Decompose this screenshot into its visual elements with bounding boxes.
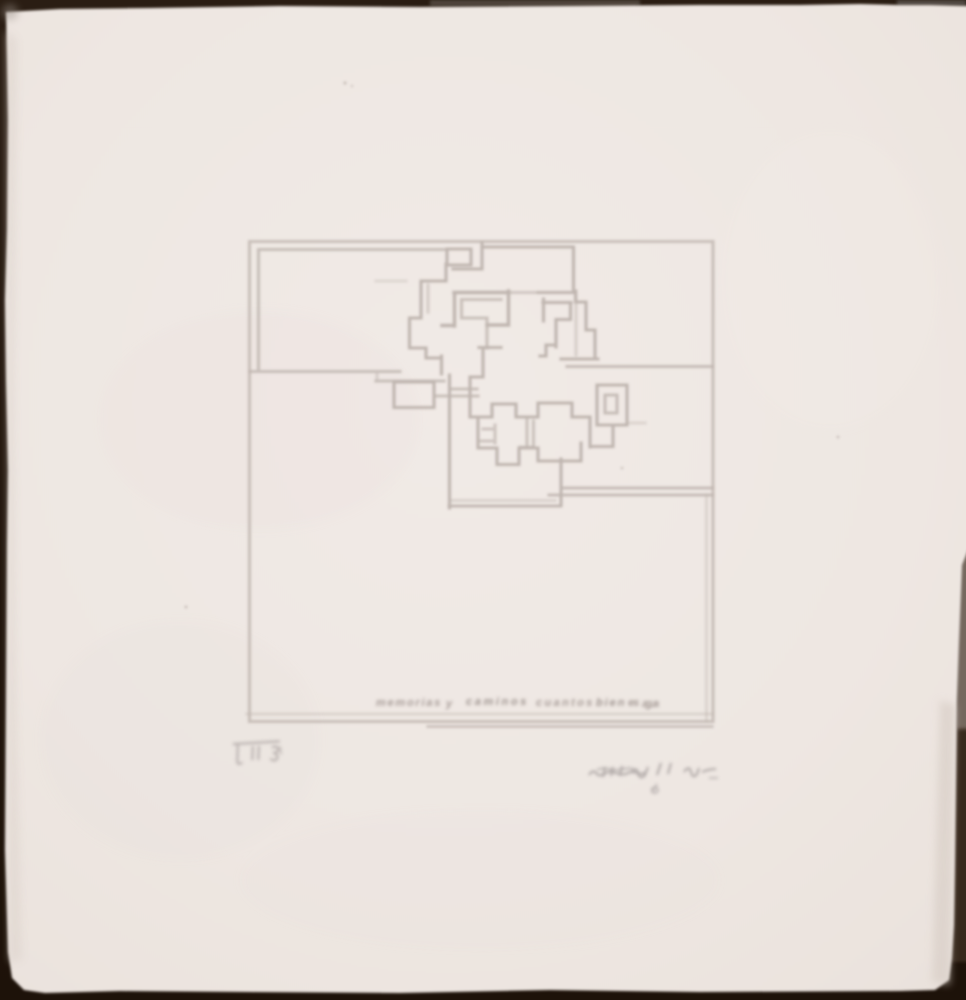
svg-text:y: y <box>445 698 453 710</box>
svg-text:es: es <box>628 697 639 709</box>
svg-text:bien: bien <box>596 697 625 709</box>
svg-text:agua: agua <box>642 698 659 710</box>
svg-text:caminos: caminos <box>466 696 526 708</box>
